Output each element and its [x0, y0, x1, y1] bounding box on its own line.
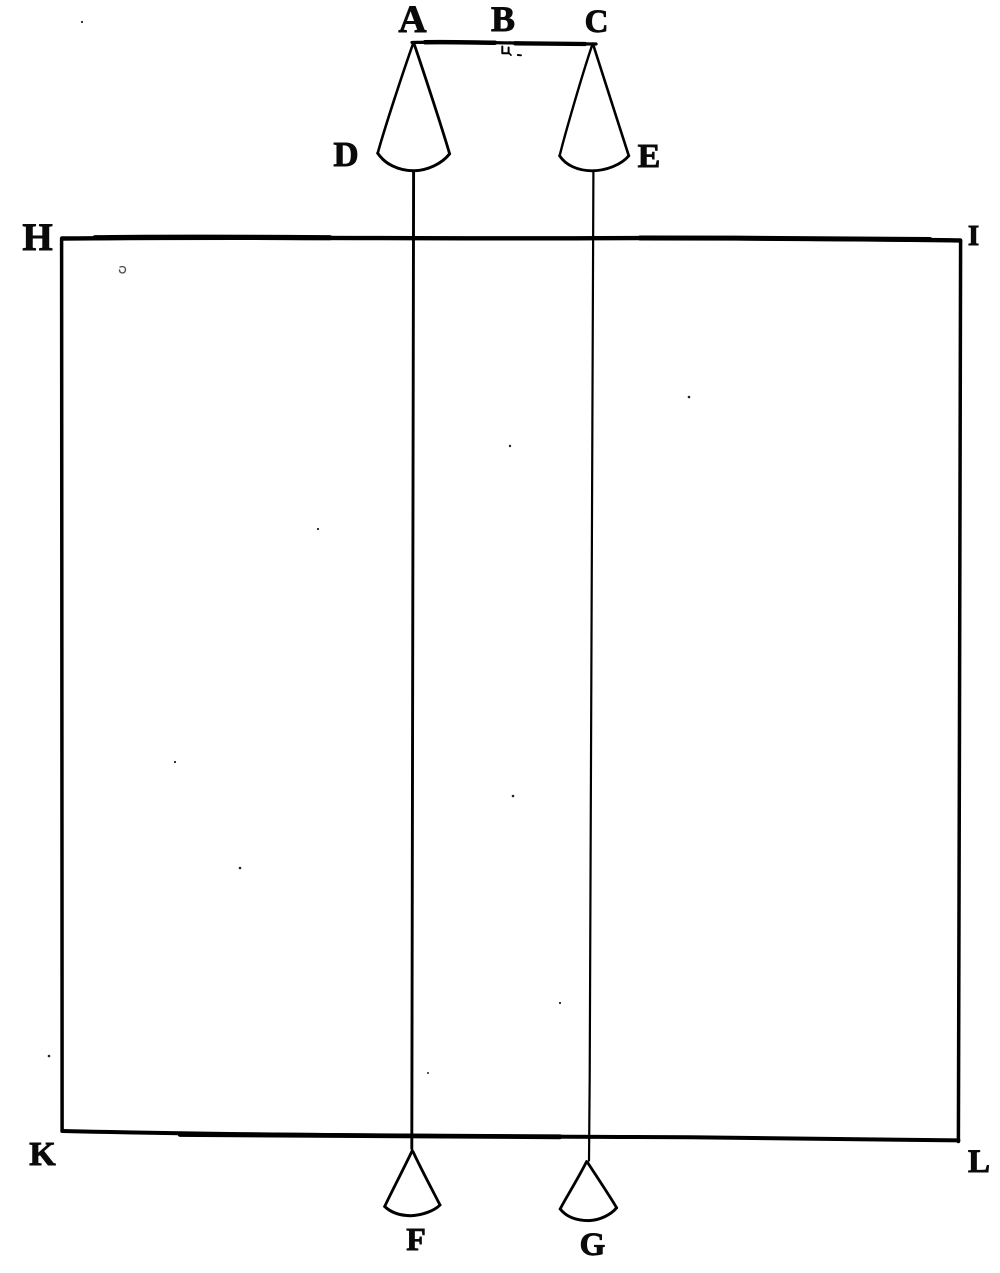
svg-text:L: L — [968, 1144, 990, 1180]
svg-text:D: D — [333, 135, 358, 174]
svg-text:K: K — [29, 1136, 56, 1173]
svg-text:F: F — [406, 1221, 426, 1257]
svg-text:E: E — [638, 138, 661, 175]
svg-text:B: B — [491, 0, 515, 39]
svg-text:A: A — [398, 0, 426, 41]
svg-text:C: C — [585, 4, 609, 40]
svg-text:G: G — [580, 1227, 606, 1263]
svg-text:H: H — [22, 216, 52, 259]
svg-text:I: I — [968, 220, 979, 252]
